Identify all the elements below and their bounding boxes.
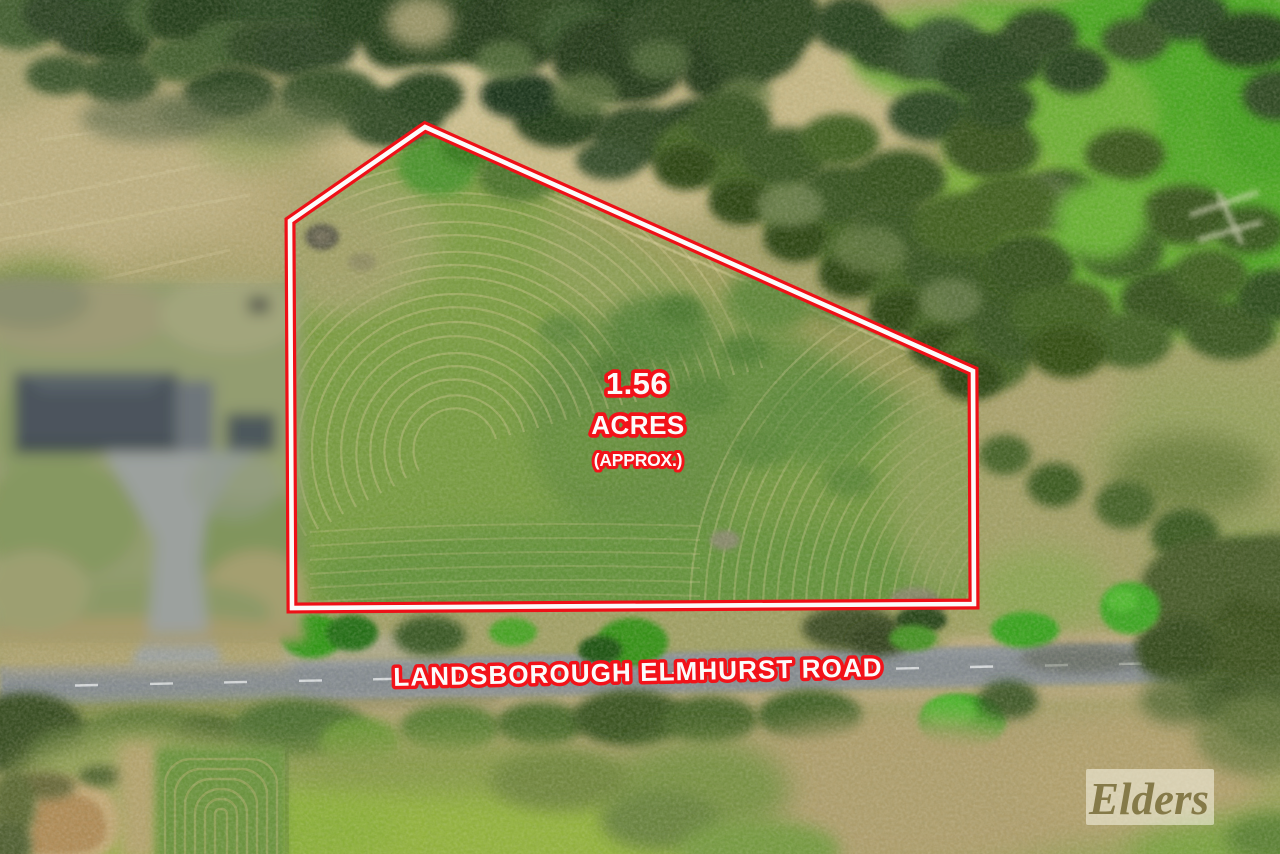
svg-text:1.56: 1.56 [606,366,668,401]
svg-text:Elders: Elders [1088,774,1209,824]
svg-text:ACRES: ACRES [591,410,685,440]
svg-text:(APPROX.): (APPROX.) [594,450,683,470]
